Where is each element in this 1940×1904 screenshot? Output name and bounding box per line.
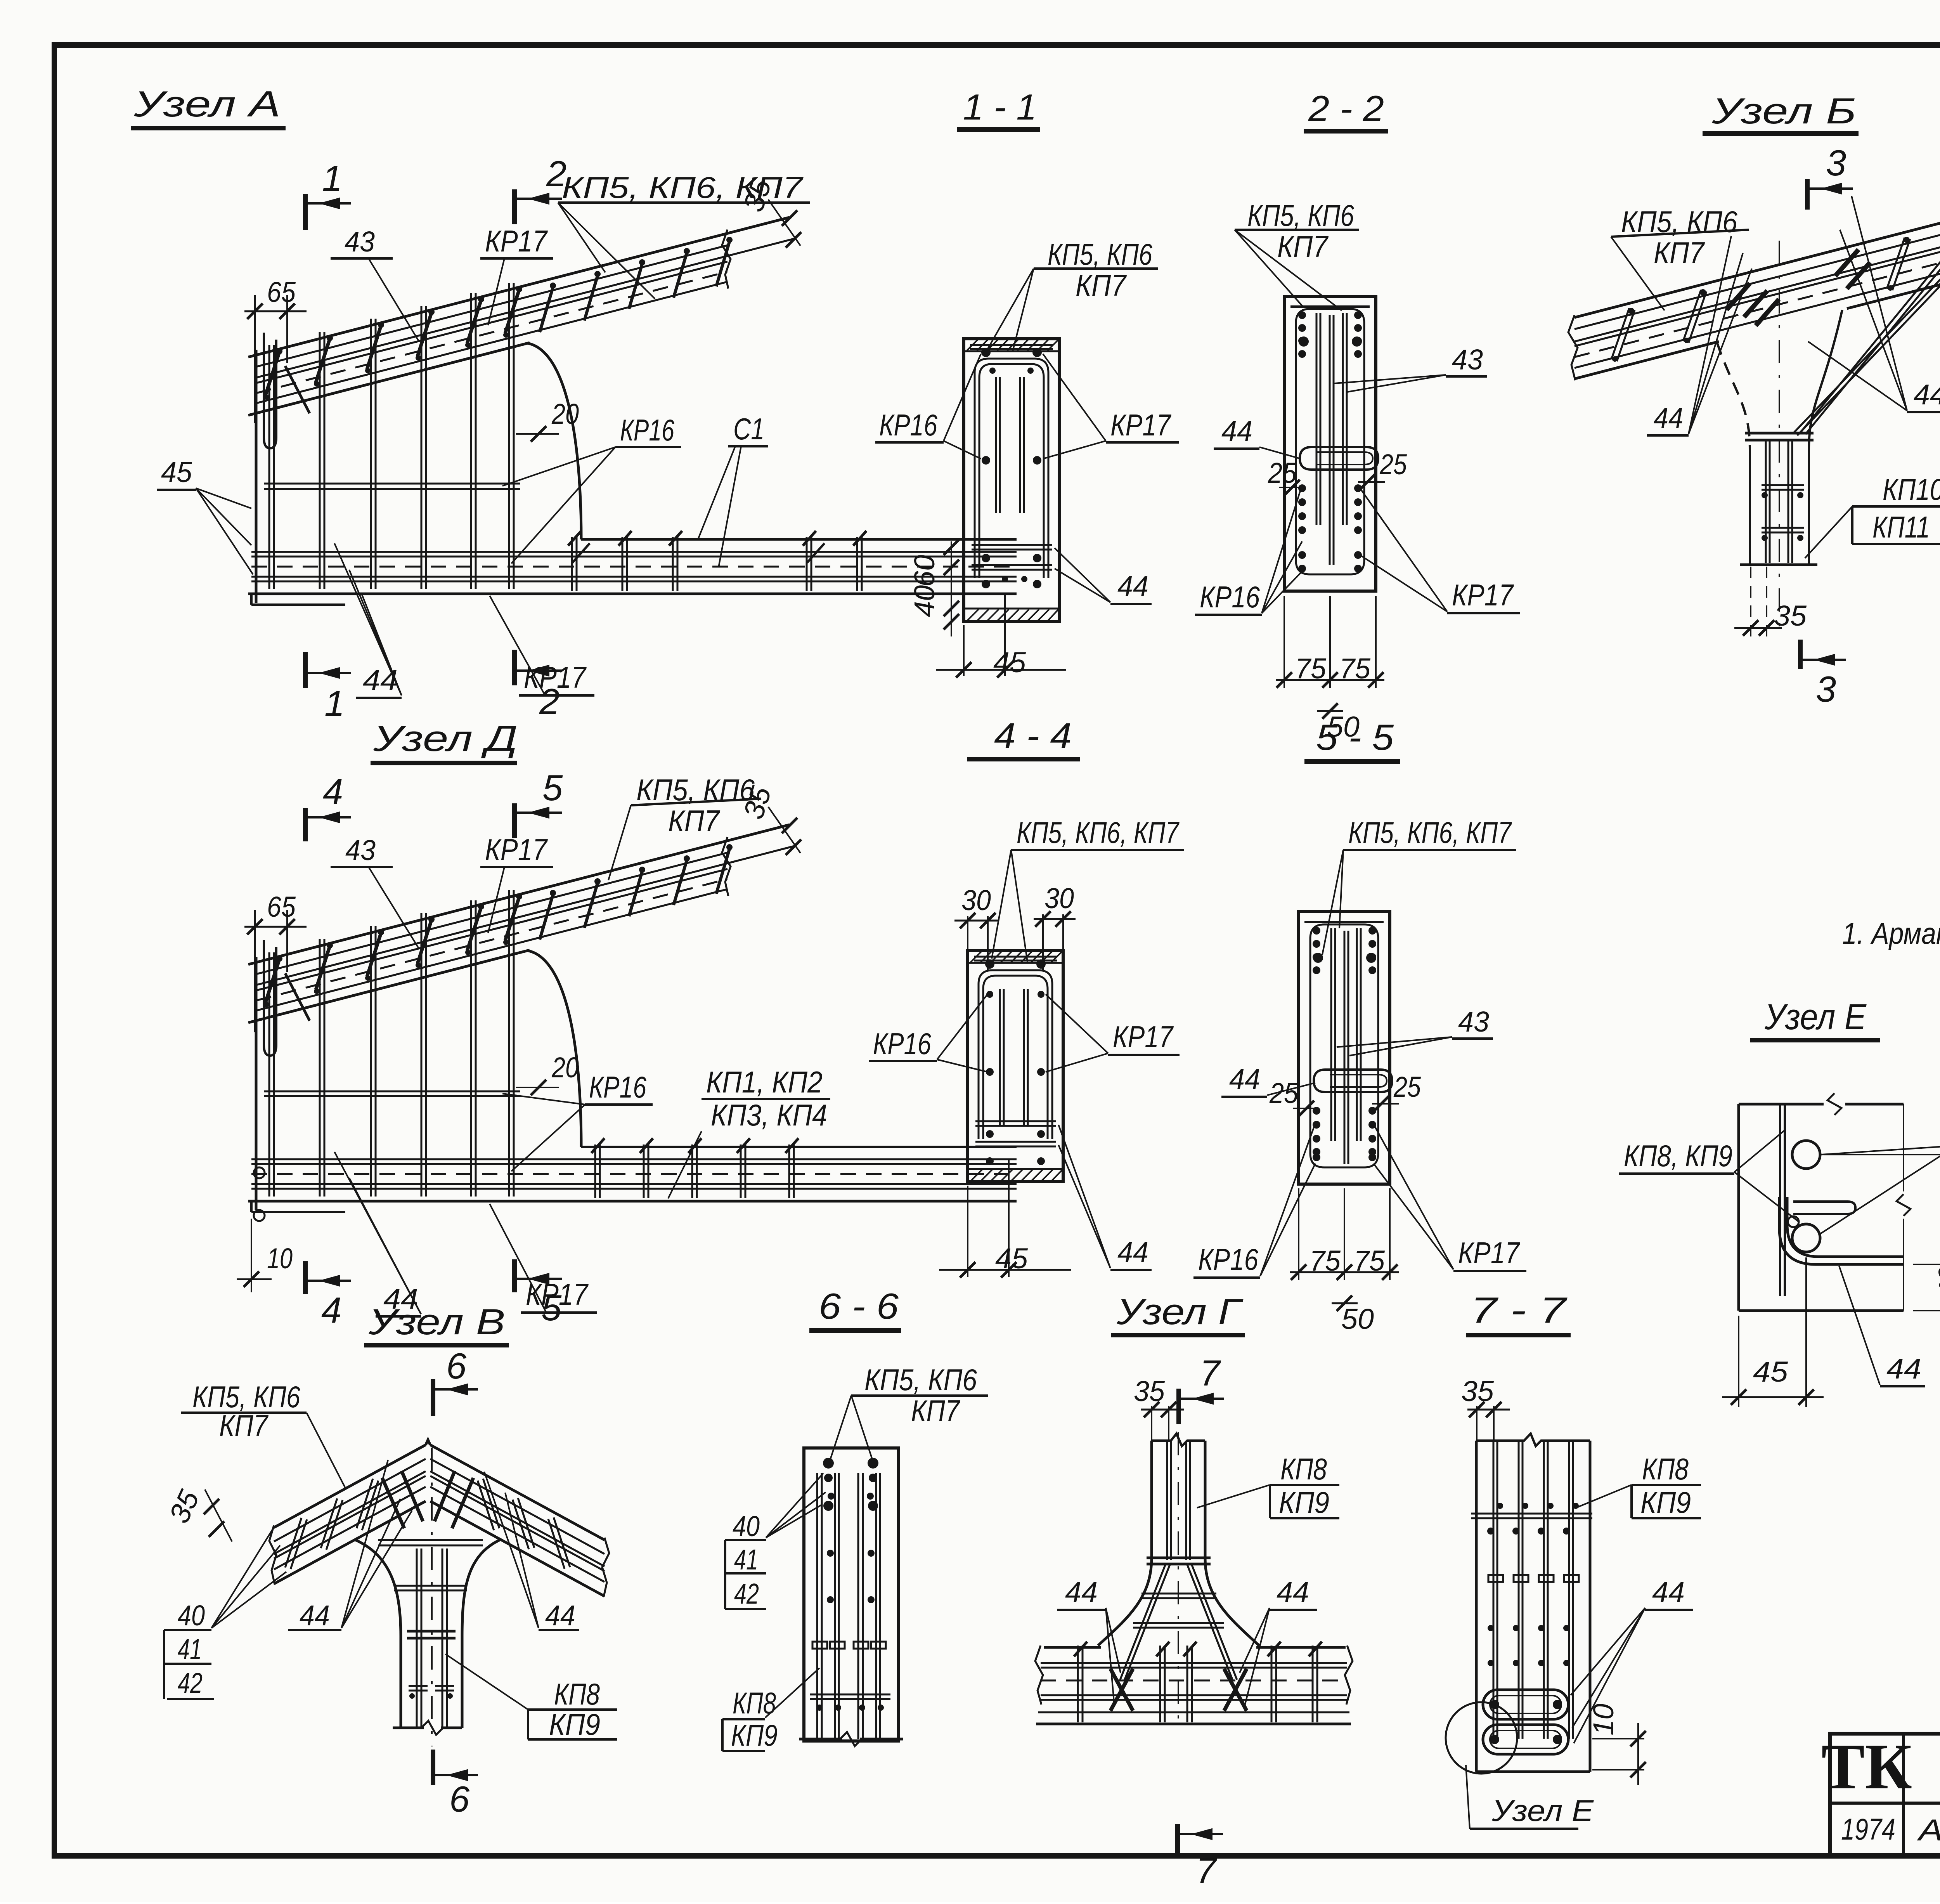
svg-text:44: 44 — [1117, 1236, 1148, 1268]
svg-text:40: 40 — [908, 585, 941, 617]
svg-text:КП5, КП6: КП5, КП6 — [1048, 237, 1152, 271]
svg-text:30: 30 — [961, 884, 991, 916]
svg-text:44: 44 — [1065, 1576, 1098, 1608]
svg-text:42: 42 — [178, 1667, 203, 1699]
svg-text:КР17: КР17 — [1113, 1020, 1174, 1054]
svg-text:Узел В: Узел В — [368, 1301, 505, 1342]
svg-text:КР16: КР16 — [1200, 580, 1260, 614]
svg-text:Узел Е: Узел Е — [1764, 996, 1867, 1037]
svg-text:60: 60 — [1934, 1185, 1940, 1217]
svg-text:4: 4 — [321, 1290, 341, 1330]
svg-text:Узел Б: Узел Б — [1711, 90, 1856, 131]
svg-text:45: 45 — [161, 456, 192, 488]
svg-text:КП5, КП6: КП5, КП6 — [1247, 198, 1354, 232]
svg-text:3: 3 — [1826, 142, 1846, 183]
svg-text:КР16: КР16 — [620, 413, 674, 447]
svg-text:КР16: КР16 — [879, 408, 937, 442]
svg-text:1 - 1: 1 - 1 — [963, 87, 1037, 127]
svg-text:45: 45 — [993, 646, 1026, 678]
svg-text:44: 44 — [1914, 378, 1940, 411]
svg-text:25: 25 — [1393, 1071, 1421, 1103]
svg-text:3: 3 — [1816, 669, 1836, 709]
svg-text:КП9: КП9 — [731, 1718, 778, 1752]
svg-text:КП9: КП9 — [549, 1707, 600, 1741]
svg-text:КП7: КП7 — [911, 1394, 960, 1428]
svg-text:20: 20 — [551, 398, 579, 430]
svg-text:1. Арматурные чертежи да: 1. Арматурные чертежи даны на листах 14,… — [1842, 916, 1940, 950]
svg-text:КР17: КР17 — [526, 1277, 589, 1311]
svg-text:КП3, КП4: КП3, КП4 — [711, 1098, 827, 1132]
svg-text:КП5, КП6, КП7: КП5, КП6, КП7 — [1348, 815, 1512, 850]
svg-text:40: 40 — [1933, 1266, 1940, 1298]
svg-text:Узел А: Узел А — [133, 83, 281, 124]
svg-text:44: 44 — [1652, 1576, 1685, 1608]
svg-text:4 - 4: 4 - 4 — [994, 715, 1072, 756]
svg-text:45: 45 — [995, 1242, 1028, 1275]
svg-text:КП5, КП6: КП5, КП6 — [864, 1363, 977, 1397]
svg-text:75: 75 — [1295, 652, 1327, 685]
svg-text:КП1, КП2: КП1, КП2 — [706, 1065, 823, 1099]
svg-text:60: 60 — [908, 555, 941, 587]
svg-text:С1: С1 — [733, 412, 764, 446]
svg-text:КП9: КП9 — [1640, 1485, 1691, 1519]
svg-text:44: 44 — [1221, 415, 1252, 447]
svg-text:43: 43 — [1458, 1006, 1489, 1038]
svg-text:65: 65 — [267, 276, 296, 308]
svg-text:КП8: КП8 — [1642, 1452, 1689, 1486]
svg-text:Узел Д: Узел Д — [373, 718, 518, 759]
svg-text:КП8: КП8 — [1280, 1452, 1327, 1486]
svg-text:25: 25 — [1268, 457, 1297, 489]
svg-text:44: 44 — [1277, 1576, 1309, 1608]
svg-text:КР16: КР16 — [589, 1070, 646, 1104]
svg-text:41: 41 — [734, 1543, 758, 1576]
svg-text:20: 20 — [551, 1051, 579, 1084]
svg-text:43: 43 — [1452, 343, 1483, 376]
svg-text:44: 44 — [1117, 570, 1148, 602]
svg-text:ТК: ТК — [1821, 1731, 1912, 1803]
svg-text:75: 75 — [1309, 1245, 1341, 1277]
svg-text:КП7: КП7 — [1654, 236, 1705, 270]
svg-text:КР16: КР16 — [873, 1027, 931, 1061]
svg-text:42: 42 — [734, 1578, 759, 1610]
svg-text:1974: 1974 — [1841, 1812, 1895, 1846]
svg-text:Арматурные узлы А, Б, В, Г: Арматурные узлы А, Б, В, Г, Д,Е — [1917, 1813, 1940, 1847]
svg-text:1: 1 — [324, 683, 345, 724]
svg-text:Узел Е: Узел Е — [1491, 1793, 1594, 1828]
svg-text:40: 40 — [733, 1510, 760, 1542]
svg-text:КР17: КР17 — [485, 224, 548, 258]
svg-text:КР17: КР17 — [1458, 1236, 1520, 1270]
svg-text:75: 75 — [1339, 652, 1371, 685]
svg-text:45: 45 — [1753, 1356, 1788, 1388]
svg-text:44: 44 — [545, 1599, 575, 1632]
svg-text:6 - 6: 6 - 6 — [819, 1286, 899, 1327]
svg-text:6: 6 — [446, 1346, 467, 1386]
svg-text:Узел Г: Узел Г — [1116, 1291, 1244, 1332]
svg-text:10: 10 — [267, 1242, 293, 1275]
svg-text:44: 44 — [1654, 402, 1683, 434]
svg-text:КП7: КП7 — [1277, 229, 1329, 264]
svg-text:44: 44 — [363, 664, 398, 696]
svg-text:7: 7 — [1200, 1353, 1221, 1393]
svg-text:КП7: КП7 — [668, 804, 720, 838]
svg-text:КП10: КП10 — [1883, 472, 1940, 506]
svg-text:44: 44 — [300, 1599, 330, 1632]
svg-text:7: 7 — [1196, 1850, 1218, 1891]
svg-text:35: 35 — [1774, 600, 1807, 632]
svg-text:1: 1 — [322, 158, 342, 199]
svg-text:КП8: КП8 — [733, 1686, 776, 1720]
svg-text:КП8: КП8 — [554, 1677, 600, 1711]
svg-text:5 - 5: 5 - 5 — [1316, 717, 1394, 758]
svg-text:КП11: КП11 — [1872, 510, 1930, 544]
svg-text:44: 44 — [1229, 1063, 1260, 1095]
svg-text:43: 43 — [345, 225, 375, 258]
svg-text:4: 4 — [323, 771, 343, 812]
svg-text:КР16: КР16 — [1198, 1242, 1259, 1276]
svg-text:75: 75 — [1354, 1245, 1385, 1277]
svg-text:25: 25 — [1379, 448, 1407, 480]
svg-text:30: 30 — [1044, 882, 1074, 914]
svg-text:35: 35 — [1461, 1375, 1494, 1407]
svg-text:КП7: КП7 — [1076, 268, 1127, 302]
svg-text:КР17: КР17 — [1452, 578, 1514, 612]
svg-text:КП5, КП6, КП7: КП5, КП6, КП7 — [1017, 815, 1180, 850]
svg-text:5: 5 — [542, 767, 563, 808]
svg-text:2 - 2: 2 - 2 — [1308, 88, 1384, 129]
svg-text:6: 6 — [449, 1779, 470, 1819]
svg-text:КП8, КП9: КП8, КП9 — [1624, 1139, 1732, 1173]
svg-text:КР17: КР17 — [1110, 408, 1171, 442]
svg-text:65: 65 — [267, 891, 296, 923]
svg-text:КР17: КР17 — [524, 660, 587, 694]
svg-text:41: 41 — [178, 1633, 202, 1665]
svg-text:44: 44 — [1886, 1353, 1921, 1385]
svg-text:43: 43 — [345, 834, 376, 866]
svg-text:КР17: КР17 — [485, 832, 548, 867]
svg-text:40: 40 — [178, 1599, 205, 1632]
svg-text:КП5, КП6, КП7: КП5, КП6, КП7 — [562, 170, 804, 205]
svg-text:50: 50 — [1341, 1303, 1374, 1335]
svg-text:35: 35 — [1134, 1375, 1165, 1407]
svg-text:КП9: КП9 — [1279, 1485, 1329, 1519]
svg-text:7 - 7: 7 - 7 — [1471, 1290, 1568, 1330]
